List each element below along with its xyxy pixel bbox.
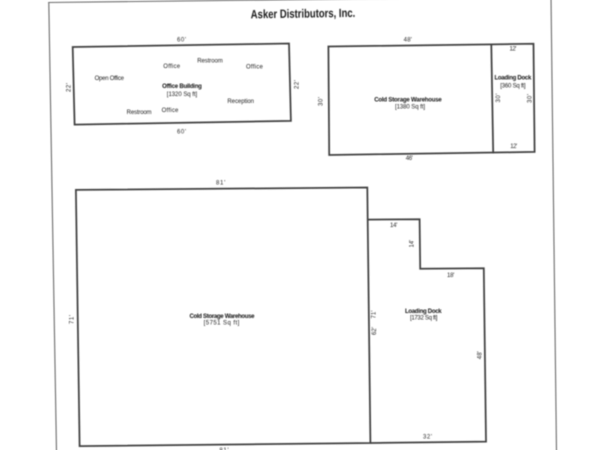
svg-text:81': 81' bbox=[216, 180, 225, 186]
svg-text:12': 12' bbox=[510, 144, 517, 150]
svg-text:Asker Distributors, Inc.: Asker Distributors, Inc. bbox=[251, 6, 356, 21]
svg-text:30': 30' bbox=[528, 94, 534, 103]
svg-text:12': 12' bbox=[509, 47, 516, 53]
svg-text:Office: Office bbox=[246, 64, 263, 70]
svg-text:22': 22' bbox=[294, 80, 300, 89]
svg-text:22': 22' bbox=[67, 83, 73, 92]
svg-text:[1320 Sq ft]: [1320 Sq ft] bbox=[167, 92, 198, 98]
svg-text:Office: Office bbox=[163, 64, 180, 70]
svg-text:60': 60' bbox=[177, 38, 186, 44]
svg-text:[1380 Sq ft]: [1380 Sq ft] bbox=[395, 105, 425, 111]
svg-text:14': 14' bbox=[390, 223, 398, 229]
svg-text:[1732 Sq ft]: [1732 Sq ft] bbox=[410, 316, 438, 322]
svg-text:Cold Storage Warehouse: Cold Storage Warehouse bbox=[374, 97, 442, 103]
svg-text:32': 32' bbox=[423, 435, 432, 441]
svg-text:Loading Dock: Loading Dock bbox=[495, 75, 532, 81]
svg-text:Loading Dock: Loading Dock bbox=[405, 309, 442, 315]
svg-text:48': 48' bbox=[478, 351, 484, 359]
svg-text:Open Office: Open Office bbox=[95, 76, 125, 82]
svg-text:46': 46' bbox=[406, 156, 413, 162]
svg-text:Reception: Reception bbox=[227, 99, 254, 105]
svg-text:Restroom: Restroom bbox=[127, 110, 152, 116]
svg-text:Office Building: Office Building bbox=[162, 84, 202, 90]
svg-text:[360 Sq ft]: [360 Sq ft] bbox=[500, 83, 526, 89]
svg-text:Office: Office bbox=[162, 108, 179, 114]
svg-text:30': 30' bbox=[319, 97, 325, 106]
svg-text:Restroom: Restroom bbox=[197, 58, 223, 64]
svg-text:14': 14' bbox=[410, 240, 416, 248]
svg-text:60': 60' bbox=[177, 130, 186, 136]
svg-text:30': 30' bbox=[496, 94, 502, 103]
svg-text:71': 71' bbox=[371, 311, 377, 319]
svg-text:71': 71' bbox=[69, 315, 75, 324]
svg-text:62': 62' bbox=[372, 327, 378, 335]
svg-text:18': 18' bbox=[447, 273, 455, 279]
svg-text:Cold Storage Warehouse: Cold Storage Warehouse bbox=[190, 314, 256, 320]
svg-text:[5751 Sq ft]: [5751 Sq ft] bbox=[204, 321, 240, 327]
svg-text:48': 48' bbox=[404, 37, 412, 43]
